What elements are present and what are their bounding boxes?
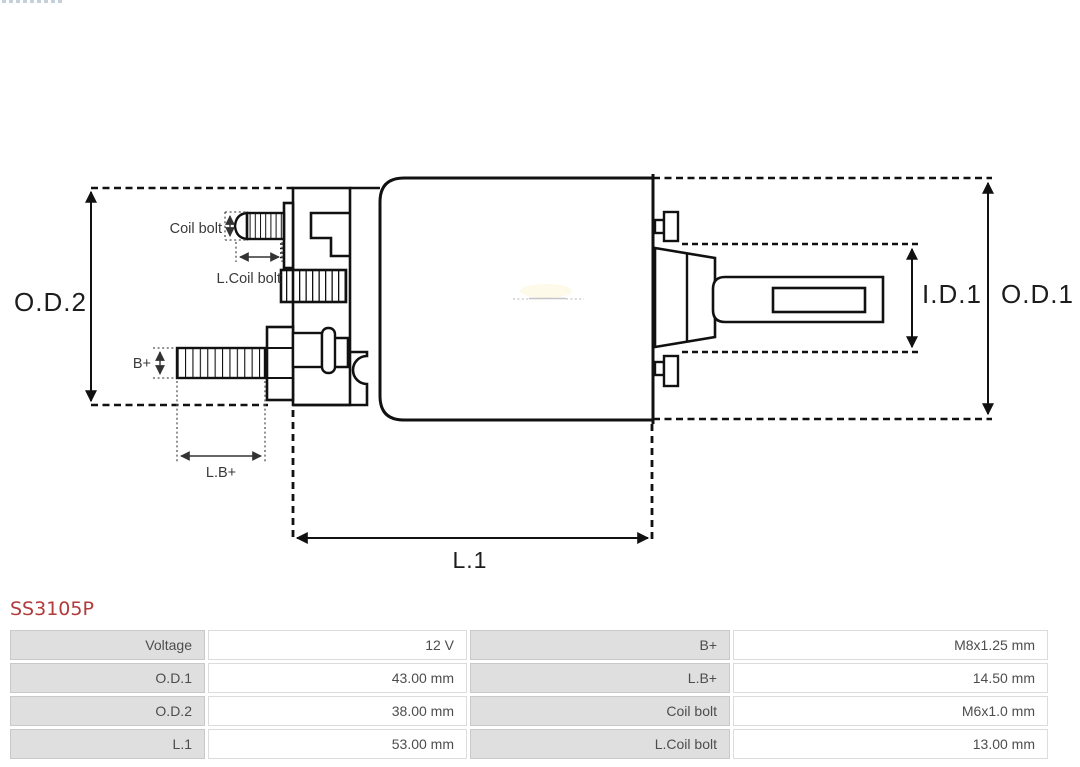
od1-label: O.D.1	[1001, 279, 1074, 309]
spec-value: 12 V	[208, 630, 467, 660]
spec-label: Coil bolt	[470, 696, 730, 726]
l-b-plus-label: L.B+	[206, 465, 236, 481]
plunger	[655, 248, 883, 347]
spec-value: M6x1.0 mm	[733, 696, 1048, 726]
spec-label: O.D.1	[10, 663, 205, 693]
spec-label: Voltage	[10, 630, 205, 660]
coil-bolt-label: Coil bolt	[170, 221, 222, 237]
l-coil-bolt-label: L.Coil bolt	[217, 271, 281, 287]
spec-label: L.Coil bolt	[470, 729, 730, 759]
threaded-bushing	[281, 270, 346, 302]
page: O.D.2 O.D.1 I.D.1	[0, 0, 1080, 767]
l1-dimension: L.1	[293, 410, 652, 573]
part-number: SS3105P	[10, 599, 94, 620]
od2-label: O.D.2	[14, 287, 87, 317]
id1-label: I.D.1	[922, 279, 982, 309]
coil-bolt	[235, 213, 284, 239]
spec-value: 53.00 mm	[208, 729, 467, 759]
clipped-brand-logo	[2, 0, 64, 3]
spec-value: 14.50 mm	[733, 663, 1048, 693]
solenoid-body	[380, 178, 653, 420]
solenoid-dimension-drawing: O.D.2 O.D.1 I.D.1	[0, 0, 1080, 595]
spec-label: O.D.2	[10, 696, 205, 726]
l1-label: L.1	[453, 547, 488, 573]
spec-value: 43.00 mm	[208, 663, 467, 693]
spec-label: B+	[470, 630, 730, 660]
spec-value: M8x1.25 mm	[733, 630, 1048, 660]
spec-table: Voltage 12 V B+ M8x1.25 mm O.D.1 43.00 m…	[10, 630, 1048, 759]
spec-value: 38.00 mm	[208, 696, 467, 726]
b-plus-label: B+	[133, 356, 151, 372]
spec-label: L.1	[10, 729, 205, 759]
spec-label: L.B+	[470, 663, 730, 693]
spec-value: 13.00 mm	[733, 729, 1048, 759]
